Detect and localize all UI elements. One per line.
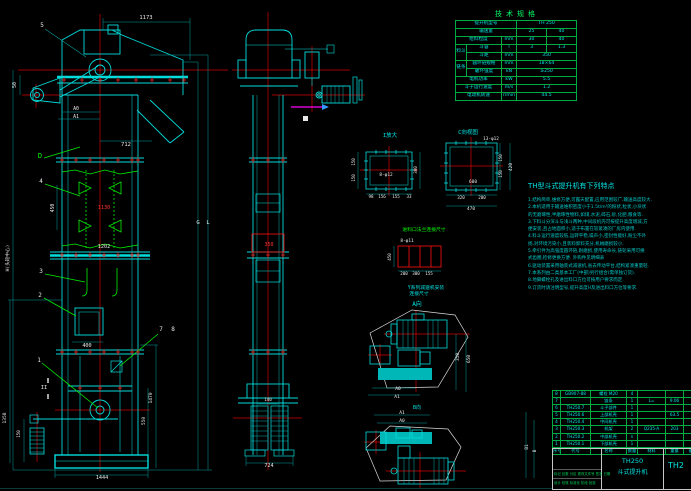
dimension-label: 350	[264, 242, 273, 248]
bom-table-grid: 8GB907-88螺栓 M2047链条1L=9.066TH250.7斗子部件15…	[552, 390, 691, 455]
dimension-label: L	[206, 220, 210, 226]
bom-cell	[666, 391, 684, 398]
note-line: 1.结构简单,维修方便,可露天配置,应用范围较广,输送高度较大.	[528, 197, 691, 204]
dimension-label: 8-φ12	[379, 172, 393, 178]
bom-cell	[684, 412, 691, 419]
bom-cell: GB907-88	[561, 391, 591, 398]
title-block-drawing-no: TH2	[664, 449, 691, 489]
bom-cell	[638, 412, 666, 419]
spec-cell: 给料粒度	[456, 37, 502, 45]
bom-cell: 1	[627, 419, 638, 426]
note-line: 6.驱动装置采用轴装式减速机,省去传动平台,结构紧凑重量轻.	[528, 263, 691, 270]
spec-cell: 44.5	[517, 93, 577, 101]
dimension-label: 450	[387, 253, 392, 261]
dimension-label: 600	[469, 179, 477, 185]
dimension-label: 150	[351, 158, 356, 166]
bom-cell: 螺栓 M20	[591, 391, 627, 398]
bom-cell: Q235-A	[638, 426, 666, 433]
dimension-label: 进料口法兰连接尺寸	[402, 226, 445, 233]
dimension-label: 1	[37, 357, 41, 364]
bom-cell: 3	[553, 426, 561, 433]
bom-cell	[638, 440, 666, 447]
dimension-label: 300	[412, 271, 420, 276]
frame-edge	[0, 488, 552, 489]
bom-cell	[666, 440, 684, 447]
dimension-label: A0	[395, 386, 401, 392]
dimension-label: I放大	[383, 131, 398, 139]
bom-cell	[684, 405, 691, 412]
dimension-label: 300	[413, 166, 418, 174]
dimension-label: 8-φ11	[400, 238, 414, 244]
aux-view-A	[370, 310, 468, 388]
spec-cell: 电机功率	[456, 77, 502, 85]
title-block-revision-area: 标记 处数 分区 更改文件号 签名 日期 设计 校核 标准化 阶段 批准	[553, 449, 602, 489]
bom-cell: 1	[627, 440, 638, 447]
spec-cell: mm	[502, 37, 517, 45]
spec-cell: 1.2	[517, 85, 577, 93]
title-block-product: TH250 斗式提升机	[602, 449, 664, 489]
note-line: 9.订货时请注明型号,提升高度H及进出料口方位等要求.	[528, 285, 691, 292]
dimension-label: 550	[141, 417, 147, 426]
bom-cell: 6	[553, 405, 561, 412]
spec-cell: r/min	[502, 93, 517, 101]
bom-cell	[666, 419, 684, 426]
spec-cell: 3	[517, 45, 547, 53]
dimension-label: 150	[498, 154, 503, 162]
bom-cell: TH250.4	[561, 419, 591, 426]
note-line: 的无磨琢性,半磨琢性物料,如煤,水泥,碎石,砂,化肥,粮食等.	[528, 212, 691, 219]
bom-cell: 2	[627, 426, 638, 433]
cad-drawing-canvas: 5117350A0A1712D44501130120232400178IIH(头…	[0, 0, 691, 491]
note-line: 2.本机适用于输送堆积密度小于1.5t/m³的粉状,粒状,小块状	[528, 204, 691, 211]
dimension-label: 7	[159, 326, 163, 333]
dimension-label: 1444	[96, 475, 109, 481]
bom-cell: 1	[553, 440, 561, 447]
note-line: 便安装,且占地面积小,适于布置在较紧凑的厂房内使用.	[528, 226, 691, 233]
dimension-label: 2	[38, 292, 42, 299]
bom-cell	[684, 440, 691, 447]
note-line: 3.下料斗分深斗与浅斗两种,中间段机壳可按提升高度增减,方	[528, 219, 691, 226]
bom-cell: L=	[638, 398, 666, 405]
spec-cell: 斗子运行速度	[456, 85, 502, 93]
dimension-label: 155	[392, 194, 400, 199]
dimension-label: 1173	[139, 15, 152, 21]
dimension-label: G	[196, 220, 199, 226]
dimension-label: A1	[399, 410, 405, 416]
dimension-label: 1202	[98, 244, 111, 250]
spec-cell: 350	[517, 53, 577, 61]
dimension-label: 98	[368, 194, 374, 199]
bom-cell: 下部机壳	[591, 440, 627, 447]
bom-cell: 203	[666, 426, 684, 433]
dimension-label: B1	[524, 444, 530, 450]
dimension-label: 420	[508, 163, 514, 171]
dimension-label: 1130	[98, 205, 111, 211]
spec-cell: 5.5	[517, 77, 577, 85]
dimension-label: 50	[12, 82, 18, 88]
title-block: 标记 处数 分区 更改文件号 签名 日期 设计 校核 标准化 阶段 批准 TH2…	[552, 448, 691, 490]
dimension-label: A0	[399, 418, 405, 424]
notes-block: TH型斗式提升机有下列特点 1.结构简单,维修方便,可露天配置,应用范围较广,输…	[528, 181, 691, 292]
dimension-label: 3	[39, 268, 43, 275]
dimension-label: D	[38, 152, 42, 160]
bom-cell	[561, 398, 591, 405]
spec-table: 技术规格 提升机型号TH 250输送量2540给料粒度mm3040料斗斗容l31…	[455, 9, 579, 101]
bom-cell: 7	[553, 398, 561, 405]
product-name: 斗式提升机	[602, 467, 663, 476]
bom-cell: 机架	[591, 426, 627, 433]
base-plate	[378, 368, 432, 380]
spec-cell: 40	[547, 29, 577, 37]
product-model: TH250	[602, 457, 663, 465]
spec-cell: ≥250	[517, 69, 577, 77]
bom-cell: 1	[627, 405, 638, 412]
spec-cell: l	[502, 45, 517, 53]
bom-cell	[684, 426, 691, 433]
bom-cell	[684, 419, 691, 426]
spec-cell: 电动机转速	[456, 93, 502, 101]
spec-cell: 破坏强度	[467, 69, 502, 77]
dimension-label: 350	[455, 353, 461, 361]
dimension-label: 156	[378, 194, 386, 199]
dimension-label: 155	[425, 271, 433, 276]
dimension-label: 470	[467, 206, 475, 212]
dimension-label: A1	[394, 394, 400, 400]
bom-cell: 链条	[591, 398, 627, 405]
dimension-label: 140	[264, 397, 272, 402]
bom-cell	[684, 391, 691, 398]
dimension-label: 150	[16, 430, 21, 438]
bom-cell	[638, 419, 666, 426]
dimension-label: 1358	[2, 412, 8, 423]
bom-cell: TH250.1	[561, 440, 591, 447]
dimension-label: 200	[478, 195, 486, 200]
dimension-label: 650	[466, 355, 472, 363]
bom-cell: n	[627, 433, 638, 440]
dimension-label: 4	[39, 178, 43, 185]
bom-cell: 上部机壳	[591, 412, 627, 419]
side-view	[238, 30, 362, 456]
dimension-label: 连接尺寸	[409, 290, 428, 297]
dimension-label: B向	[413, 404, 421, 411]
spec-table-title: 技术规格	[455, 9, 579, 19]
dimension-label: 1470	[148, 392, 154, 403]
dimension-label: A向	[412, 300, 422, 308]
dimension-label: Y系列减速机安装	[408, 284, 445, 291]
spec-cell: kN	[502, 69, 517, 77]
dimension-label: 33	[406, 194, 412, 199]
spec-cell: 提升机型号	[456, 21, 517, 29]
note-line: 8.地脚螺栓孔及进出料口方位可按用户要求而定.	[528, 277, 691, 284]
spec-cell: 链条	[456, 61, 467, 77]
bom-cell: TH250.7	[561, 405, 591, 412]
dimension-label: 400	[82, 343, 91, 349]
dimension-label: 200	[400, 271, 408, 276]
dimension-label: C向视图	[458, 128, 478, 136]
bom-cell: 4	[627, 391, 638, 398]
bom-cell: TH250.6	[561, 412, 591, 419]
bom-cell: TH250.3	[561, 426, 591, 433]
dimension-label: A1	[73, 114, 79, 120]
spec-cell: 25	[517, 29, 547, 37]
bom-cell: 8	[553, 391, 561, 398]
bom-table: 8GB907-88螺栓 M2047链条1L=9.066TH250.7斗子部件15…	[552, 390, 691, 455]
bom-cell: 5	[553, 412, 561, 419]
dimension-label: 724	[264, 463, 273, 469]
bom-cell: 1	[627, 412, 638, 419]
spec-cell: 1.3	[547, 45, 577, 53]
bom-cell	[638, 405, 666, 412]
notes-title: TH型斗式提升机有下列特点	[528, 181, 691, 191]
bom-cell: 63.5	[666, 412, 684, 419]
spec-cell: 斗容	[467, 45, 502, 53]
dimension-label: H(头轮中心)	[4, 245, 11, 272]
note-line: 4.料斗运行速度较低,运转平稳,噪声小,密封性能好,粉尘不外	[528, 233, 691, 240]
bom-cell: 斗子部件	[591, 405, 627, 412]
dimension-label: 150	[351, 174, 356, 182]
bom-cell: 中部机壳	[591, 433, 627, 440]
spec-cell: 斗距	[467, 53, 502, 61]
spec-cell: 输送量	[456, 29, 517, 37]
bom-cell: TH250.2	[561, 433, 591, 440]
bom-cell: 1	[627, 398, 638, 405]
dimension-label: 450	[50, 204, 56, 213]
bom-cell	[684, 398, 691, 405]
dimension-label: 150	[498, 170, 503, 178]
bom-cell: 4	[553, 419, 561, 426]
note-line: 7.本系列由二类基本工厂(中部)另行组合(需单独订货).	[528, 270, 691, 277]
dimension-label: 5	[40, 22, 44, 29]
signature-row: 设计 校核 标准化 阶段 批准	[554, 480, 596, 485]
spec-cell: m/s	[502, 85, 517, 93]
dimension-label: II	[41, 385, 48, 391]
bom-cell	[638, 391, 666, 398]
bom-cell: 9.06	[666, 398, 684, 405]
white-tag	[303, 116, 308, 121]
note-line: 扬,对环境污染小,且装料卸料充分,机械磨损较小.	[528, 241, 691, 248]
bom-cell	[638, 433, 666, 440]
spec-cell: kW	[502, 77, 517, 85]
bom-cell	[666, 405, 684, 412]
spec-cell: 40	[547, 37, 577, 45]
dimension-label: 712	[121, 142, 131, 148]
note-line: 式齿圈,检修更换方便. 外购件见明细表	[528, 255, 691, 262]
bom-cell	[666, 433, 684, 440]
spec-cell: 30	[517, 37, 547, 45]
spec-cell: mm	[502, 61, 517, 69]
flange-bolt-marks	[60, 77, 285, 391]
bom-cell	[684, 433, 691, 440]
dimension-label: 320	[457, 195, 465, 200]
dimension-label: B	[532, 449, 538, 452]
spec-cell: mm	[502, 53, 517, 61]
bom-cell: 2	[553, 433, 561, 440]
note-line: 5.牵引件为高强度圆环链,耐磨损,使用寿命长,链轮采用可换	[528, 248, 691, 255]
spec-table-grid: 提升机型号TH 250输送量2540给料粒度mm3040料斗斗容l31.3斗距m…	[455, 20, 577, 101]
spec-cell: TH 250	[517, 21, 577, 29]
drawing-number: TH2	[668, 461, 691, 470]
spec-cell: 18×64	[517, 61, 577, 69]
aux-view-B	[366, 426, 461, 484]
dimension-label: 8	[171, 326, 175, 333]
dimension-label: A0	[73, 106, 79, 112]
bom-cell: 中间机壳	[591, 419, 627, 426]
spec-cell: 圆环链规格	[467, 61, 502, 69]
dimension-label: 13-φ12	[483, 136, 499, 142]
spec-cell: 料斗	[456, 45, 467, 61]
